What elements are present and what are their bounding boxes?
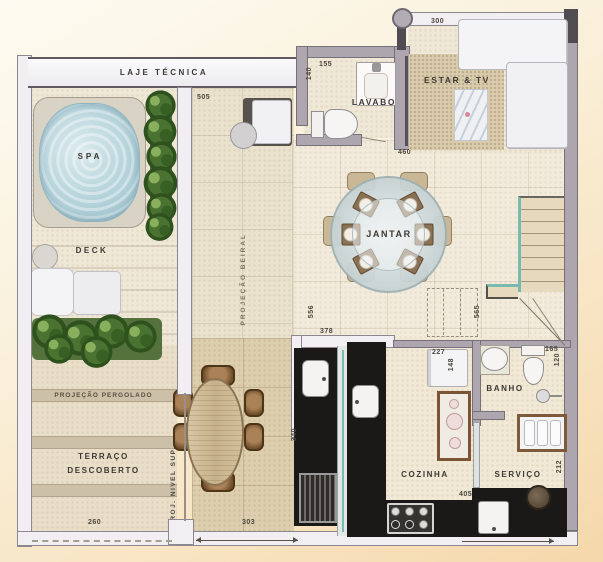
- room-label-servico: SERVIÇO: [488, 470, 548, 479]
- burner-icon: [419, 507, 428, 516]
- sofa-chaise-section: [506, 62, 568, 149]
- wall-dark-line: [405, 56, 408, 146]
- wall-line-nivel: [184, 393, 186, 521]
- dimension-arrow: [549, 538, 554, 544]
- oven-burner-icon: [449, 437, 461, 449]
- label-proj-nivel-sup: PROJ. NIVEL SUP.: [170, 446, 177, 526]
- room-label-banho: BANHO: [482, 384, 528, 393]
- burner-icon: [391, 520, 400, 529]
- laundry-roller: [537, 420, 548, 446]
- dimension-340: 340: [291, 428, 298, 441]
- laundry-roller: [550, 420, 561, 446]
- column-round: [392, 8, 413, 29]
- dimension-120: 120: [554, 353, 561, 366]
- kitchen-sink: [302, 360, 329, 397]
- lounge-pillow-round: [32, 244, 58, 270]
- water-tank-round: [526, 485, 551, 510]
- label-projecao-pergolado: PROJEÇÃO PERGOLADO: [32, 392, 175, 399]
- dimension-260: 260: [88, 519, 101, 526]
- kitchen-sink: [352, 385, 379, 418]
- laundry-roller: [524, 420, 535, 446]
- burner-icon: [405, 507, 414, 516]
- outdoor-chair: [244, 389, 264, 417]
- wall-left-outer: [17, 55, 32, 547]
- service-sink: [478, 501, 509, 534]
- lounge-chair-cushion: [73, 271, 121, 315]
- pergola-beam: [30, 484, 177, 497]
- label-laje-tecnica: LAJE TÉCNICA: [28, 68, 300, 77]
- bath-sink-round: [481, 347, 508, 371]
- dimension-405: 405: [459, 491, 472, 498]
- side-table-round: [230, 122, 257, 149]
- staircase: [518, 196, 564, 292]
- room-label-lavabo: LAVABO: [349, 97, 399, 107]
- lounge-chair-cushion: [30, 268, 74, 316]
- wall-deck-divider: [177, 87, 192, 395]
- toilet-tank: [311, 111, 324, 138]
- dimension-505: 505: [197, 94, 210, 101]
- grill: [299, 473, 337, 523]
- dashed-projection: [427, 288, 478, 337]
- dimension-212: 212: [556, 460, 563, 473]
- armchair: [252, 100, 291, 144]
- plant-icon: [145, 213, 174, 241]
- burner-icon: [391, 507, 400, 516]
- spa-water: [39, 103, 140, 222]
- dimension-378: 378: [320, 328, 333, 335]
- dimension-565: 565: [474, 305, 481, 318]
- dashed-projection-line: [460, 289, 461, 335]
- plant-icon: [44, 334, 74, 364]
- glass-partition-line: [342, 350, 344, 532]
- dashed-boundary-line: [32, 540, 172, 542]
- lavabo-sink-basin: [364, 73, 388, 99]
- dimension-arrow: [293, 537, 298, 543]
- burner-icon: [405, 520, 414, 529]
- wall-lavabo-top: [296, 46, 408, 58]
- dimension-148: 148: [448, 358, 455, 371]
- dimension-arrow: [196, 537, 201, 543]
- sliding-door: [473, 422, 480, 488]
- room-label-deck: DECK: [62, 246, 122, 255]
- marble-rug-accent: [465, 112, 470, 117]
- outdoor-chair: [244, 423, 264, 451]
- dimension-460: 460: [398, 149, 411, 156]
- shower-arm: [550, 395, 562, 397]
- label-projecao-beiral: PROJEÇÃO BEIRAL: [240, 233, 247, 325]
- stair-landing: [486, 284, 518, 299]
- oven-burner-icon: [449, 399, 459, 409]
- dimension-227: 227: [432, 349, 445, 356]
- dimension-300: 300: [431, 18, 444, 25]
- wall-banho-bottom: [472, 411, 505, 420]
- room-label-cozinha: COZINHA: [388, 470, 462, 479]
- dimension-303: 303: [242, 519, 255, 526]
- shower-head-icon: [536, 389, 550, 403]
- toilet-bowl: [324, 109, 358, 139]
- floor-plan: SPA 505 DECK PROJEÇÃO PERGOLADO TERRAÇO …: [0, 0, 603, 562]
- plant-icon: [124, 320, 157, 353]
- faucet-icon: [372, 63, 381, 72]
- room-label-spa: SPA: [60, 152, 120, 161]
- outdoor-dining-table: [186, 378, 244, 486]
- oven-burner-icon: [446, 413, 463, 430]
- dashed-projection-line: [443, 289, 444, 335]
- dimension-line: [196, 540, 298, 541]
- burner-icon: [419, 520, 428, 529]
- room-label-jantar: JANTAR: [361, 229, 417, 239]
- dimension-140: 140: [306, 67, 313, 80]
- toilet-tank: [521, 345, 545, 356]
- room-label-terraco-line1: TERRAÇO: [30, 452, 177, 461]
- marble-rug: [454, 89, 488, 141]
- plant-icon: [80, 336, 113, 368]
- wall-lavabo-left: [296, 46, 308, 126]
- room-label-estar-tv: ESTAR & TV: [412, 75, 502, 85]
- dimension-556: 556: [308, 305, 315, 318]
- room-label-terraco-line2: DESCOBERTO: [30, 466, 177, 475]
- dimension-line: [462, 541, 554, 542]
- dimension-165: 165: [545, 346, 558, 353]
- dimension-155: 155: [319, 61, 332, 68]
- pergola-beam: [30, 436, 177, 449]
